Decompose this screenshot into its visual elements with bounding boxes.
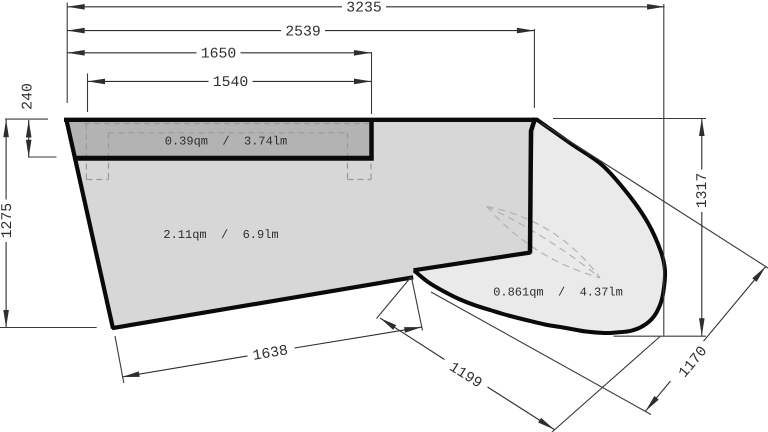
svg-text:1317: 1317 <box>695 173 711 209</box>
svg-text:0.861qm / 4.37lm: 0.861qm / 4.37lm <box>493 285 623 299</box>
svg-text:1638: 1638 <box>252 343 290 365</box>
svg-text:2.11qm / 6.9lm: 2.11qm / 6.9lm <box>163 228 278 242</box>
svg-text:1199: 1199 <box>446 360 485 393</box>
svg-text:1170: 1170 <box>676 344 711 382</box>
svg-text:240: 240 <box>21 83 37 110</box>
svg-text:1275: 1275 <box>0 203 16 239</box>
svg-text:1540: 1540 <box>213 75 249 91</box>
svg-text:3235: 3235 <box>346 1 382 17</box>
svg-text:2539: 2539 <box>285 24 321 40</box>
svg-text:1650: 1650 <box>201 47 237 63</box>
svg-text:0.39qm / 3.74lm: 0.39qm / 3.74lm <box>165 134 287 148</box>
